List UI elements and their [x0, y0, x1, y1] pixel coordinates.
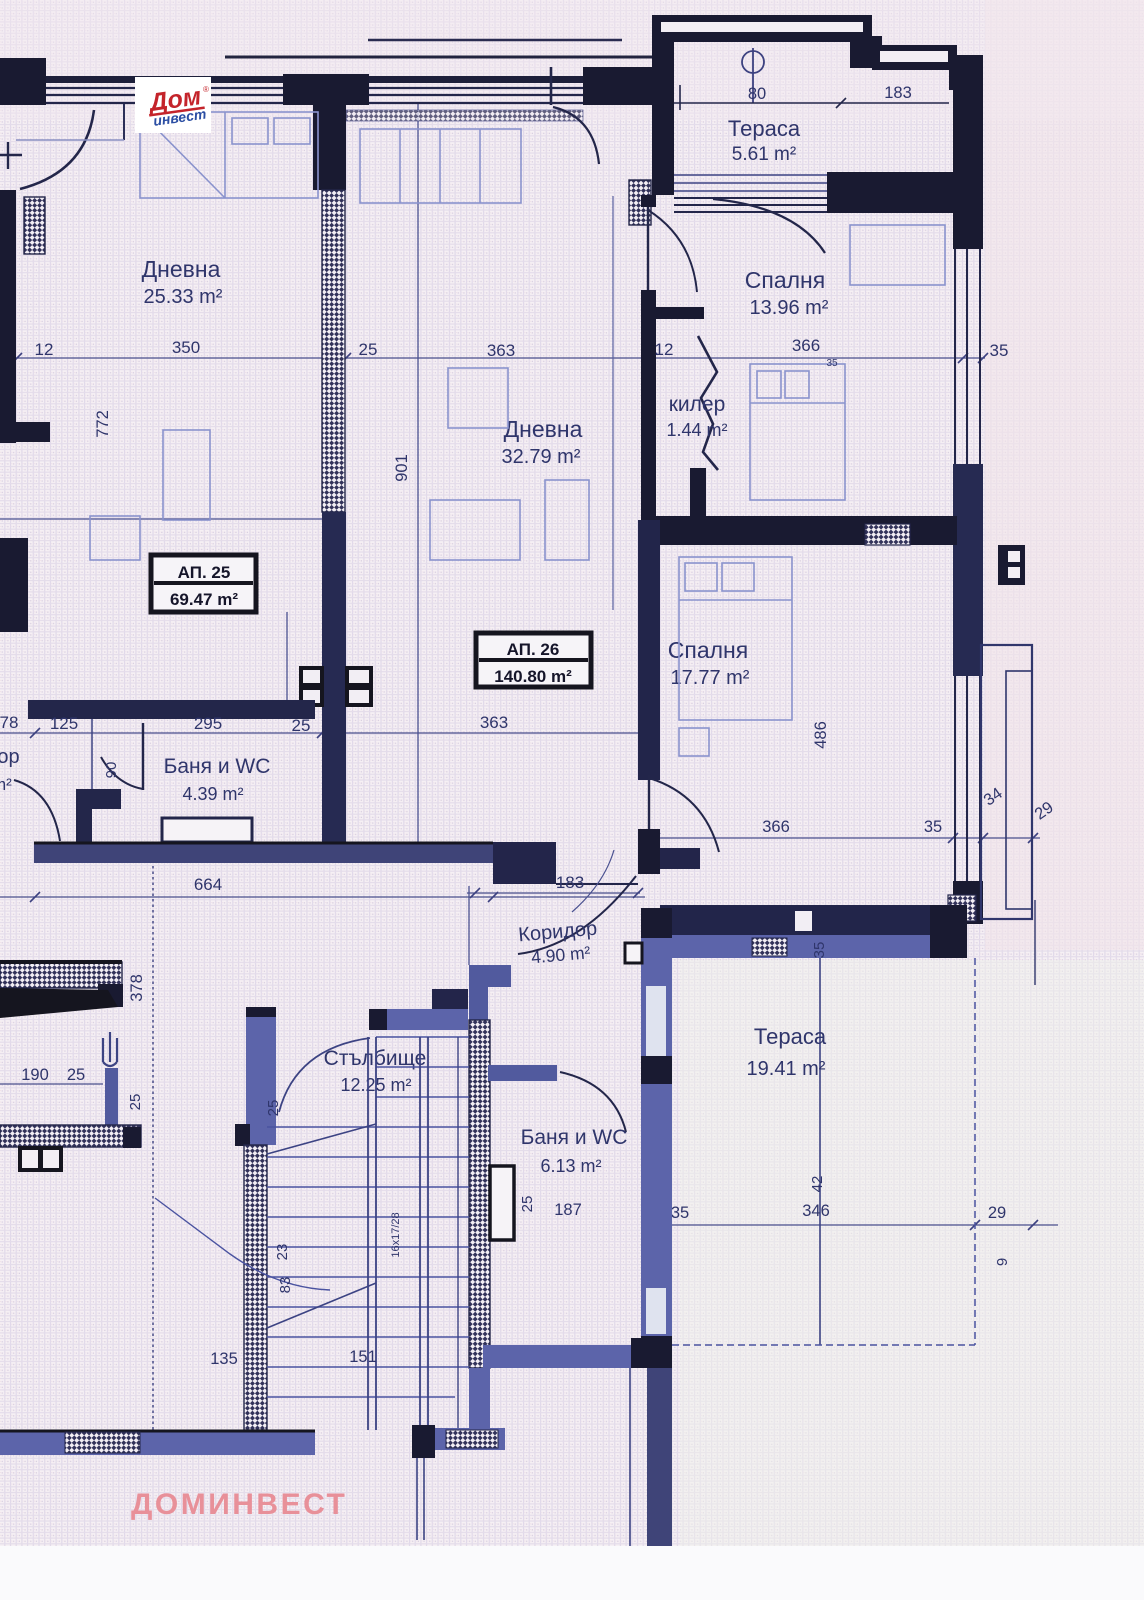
svg-text:Спалня: Спалня: [668, 637, 748, 663]
svg-text:35: 35: [811, 942, 828, 959]
svg-text:ДОМИНВЕСТ: ДОМИНВЕСТ: [131, 1488, 347, 1521]
svg-text:772: 772: [94, 410, 112, 438]
svg-text:25: 25: [265, 1100, 282, 1117]
svg-text:Спалня: Спалня: [745, 267, 825, 293]
svg-text:366: 366: [792, 336, 820, 355]
svg-text:Баня и WC: Баня и WC: [521, 1126, 628, 1149]
svg-text:Дневна: Дневна: [504, 416, 583, 442]
svg-text:m²: m²: [0, 775, 12, 794]
svg-text:29: 29: [988, 1204, 1006, 1222]
svg-text:350: 350: [172, 338, 200, 357]
svg-text:35: 35: [826, 358, 838, 369]
svg-text:9: 9: [994, 1258, 1011, 1266]
svg-text:12: 12: [35, 340, 54, 359]
svg-text:6.13 m²: 6.13 m²: [540, 1156, 601, 1176]
svg-text:346: 346: [802, 1202, 830, 1220]
svg-text:Тераса: Тераса: [728, 116, 801, 141]
svg-text:АП. 25: АП. 25: [178, 563, 231, 582]
svg-text:83: 83: [277, 1277, 294, 1294]
svg-text:78: 78: [0, 713, 18, 732]
svg-text:90: 90: [103, 762, 120, 779]
svg-text:25: 25: [519, 1196, 536, 1213]
svg-text:135: 135: [210, 1350, 238, 1368]
svg-text:Дневна: Дневна: [142, 256, 221, 282]
svg-text:151: 151: [349, 1348, 377, 1366]
svg-text:363: 363: [487, 341, 515, 360]
svg-text:378: 378: [128, 974, 146, 1002]
svg-text:25: 25: [292, 716, 311, 735]
svg-text:42: 42: [809, 1176, 826, 1193]
svg-text:80: 80: [748, 85, 766, 103]
svg-text:12: 12: [655, 340, 674, 359]
svg-text:килер: килер: [669, 393, 726, 416]
svg-text:16x17/28: 16x17/28: [390, 1212, 402, 1257]
svg-text:АП. 26: АП. 26: [507, 640, 560, 659]
svg-text:664: 664: [194, 875, 222, 894]
svg-text:69.47 m²: 69.47 m²: [170, 590, 238, 609]
svg-text:25: 25: [127, 1094, 144, 1111]
svg-text:25: 25: [67, 1066, 85, 1084]
svg-text:®: ®: [203, 85, 209, 94]
svg-text:35: 35: [990, 341, 1009, 360]
svg-text:19.41 m²: 19.41 m²: [747, 1058, 826, 1080]
svg-text:35: 35: [671, 1204, 689, 1222]
svg-text:25: 25: [359, 340, 378, 359]
svg-text:295: 295: [194, 714, 222, 733]
svg-text:17.77 m²: 17.77 m²: [671, 667, 750, 689]
svg-text:1.44 m²: 1.44 m²: [666, 420, 727, 440]
svg-text:5.61 m²: 5.61 m²: [732, 144, 796, 165]
svg-text:4.39 m²: 4.39 m²: [182, 784, 243, 804]
svg-text:32.79 m²: 32.79 m²: [502, 446, 581, 468]
svg-text:187: 187: [554, 1201, 582, 1219]
svg-text:жор: жор: [0, 746, 20, 768]
svg-text:183: 183: [556, 873, 584, 892]
svg-text:486: 486: [812, 721, 830, 749]
svg-text:901: 901: [393, 454, 411, 482]
svg-text:190: 190: [21, 1066, 49, 1084]
svg-text:13.96 m²: 13.96 m²: [750, 297, 829, 319]
svg-text:363: 363: [480, 713, 508, 732]
svg-text:125: 125: [50, 714, 78, 733]
svg-text:Тераса: Тераса: [754, 1024, 827, 1049]
svg-text:25.33 m²: 25.33 m²: [144, 286, 223, 308]
svg-text:Баня и WC: Баня и WC: [164, 755, 271, 778]
svg-text:35: 35: [924, 818, 942, 836]
svg-text:366: 366: [762, 818, 790, 836]
svg-text:140.80 m²: 140.80 m²: [494, 667, 572, 686]
svg-text:23: 23: [274, 1244, 291, 1261]
svg-text:183: 183: [884, 84, 912, 102]
